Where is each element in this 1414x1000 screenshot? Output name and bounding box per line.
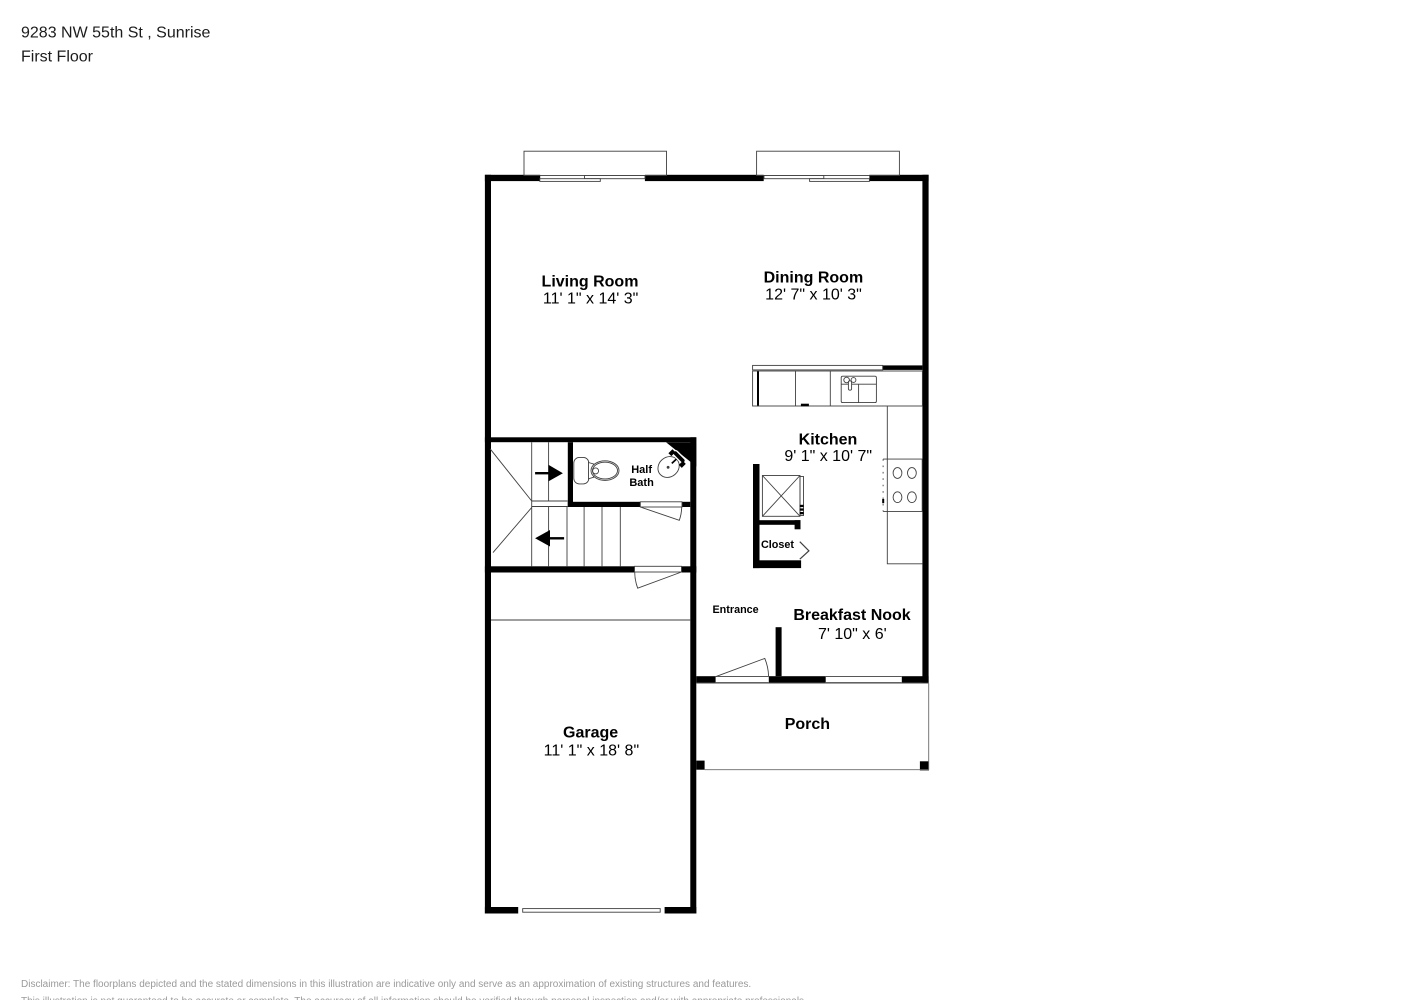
svg-text:Dining Room: Dining Room	[764, 269, 864, 286]
svg-text:9' 1" x 10' 7": 9' 1" x 10' 7"	[784, 448, 872, 465]
svg-text:Porch: Porch	[785, 716, 830, 733]
svg-text:9283 NW 55th St , Sunrise: 9283 NW 55th St , Sunrise	[21, 24, 211, 41]
svg-text:12' 7" x 10' 3": 12' 7" x 10' 3"	[765, 286, 862, 303]
svg-text:Living Room: Living Room	[542, 274, 639, 291]
svg-text:11' 1" x 18' 8": 11' 1" x 18' 8"	[544, 742, 639, 759]
svg-text:Bath: Bath	[629, 477, 654, 489]
svg-text:Kitchen: Kitchen	[799, 432, 858, 449]
svg-text:Breakfast Nook: Breakfast Nook	[793, 607, 910, 624]
svg-text:11' 1" x 14' 3": 11' 1" x 14' 3"	[543, 291, 638, 308]
svg-text:Closet: Closet	[761, 539, 794, 551]
svg-text:Garage: Garage	[563, 725, 618, 742]
svg-text:Half: Half	[631, 464, 652, 476]
svg-text:Entrance: Entrance	[712, 604, 758, 616]
svg-text:This illustration is not guara: This illustration is not guaranteed to b…	[21, 996, 807, 1000]
svg-text:First Floor: First Floor	[21, 48, 94, 65]
svg-text:Disclaimer: The floorplans dep: Disclaimer: The floorplans depicted and …	[21, 979, 751, 990]
svg-text:7' 10" x 6': 7' 10" x 6'	[818, 626, 887, 643]
